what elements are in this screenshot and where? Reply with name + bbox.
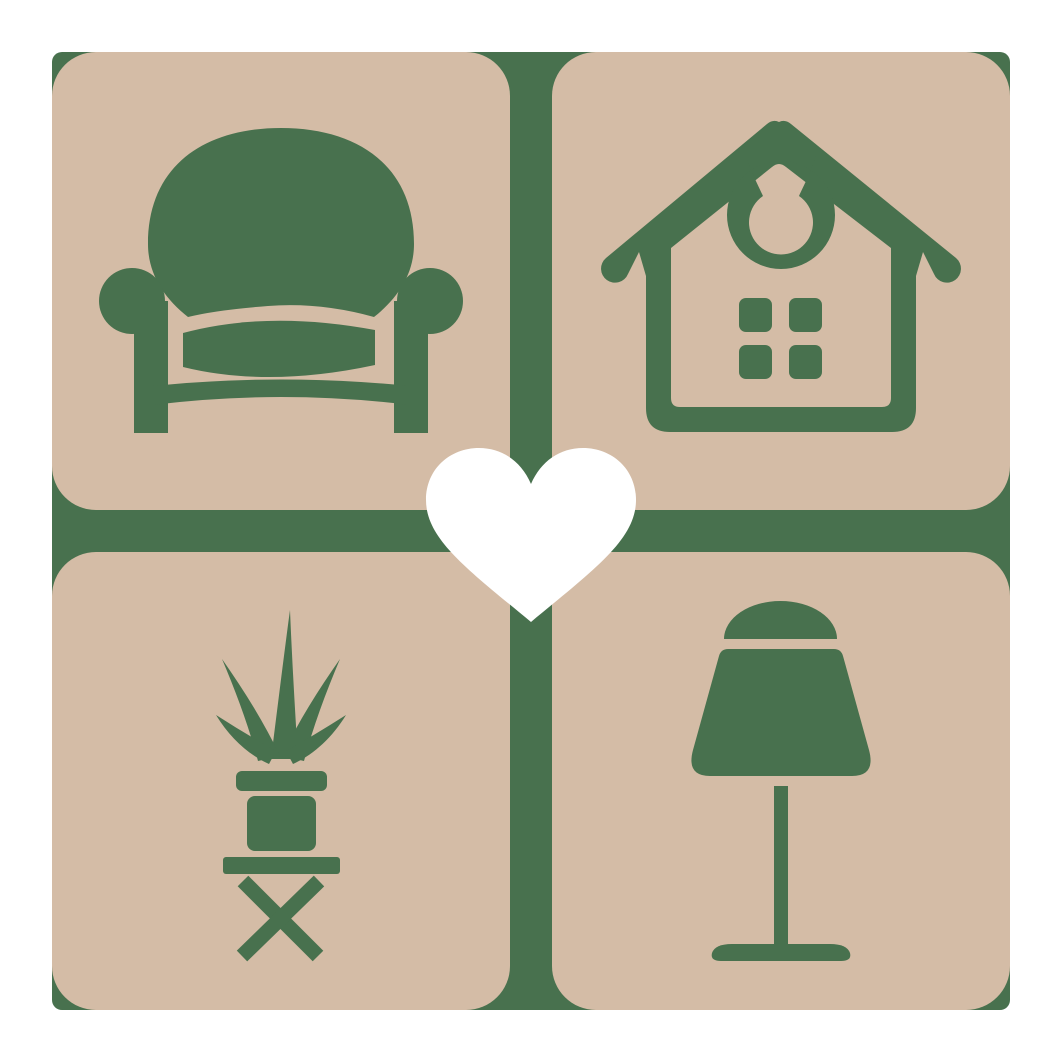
plant-pot-body xyxy=(247,796,316,851)
armchair-icon xyxy=(52,52,510,510)
armchair-right-leg xyxy=(394,301,428,433)
lamp-cap xyxy=(724,601,837,639)
heart-icon xyxy=(425,447,637,623)
house-window-pane xyxy=(739,298,772,332)
armchair-left-leg xyxy=(134,301,168,433)
house-window-pane xyxy=(789,298,822,332)
plant-pot-rim xyxy=(236,771,327,791)
armchair-seat-cushion xyxy=(183,321,375,377)
lamp-shade xyxy=(691,649,870,776)
house-icon xyxy=(552,52,1010,510)
house-window-pane xyxy=(739,345,772,379)
logo-backdrop xyxy=(52,52,1010,1010)
stool-top xyxy=(223,857,340,874)
lamp-stem xyxy=(774,786,788,952)
heart-svg xyxy=(425,447,637,623)
house-outline xyxy=(601,121,961,432)
logo-canvas: { "colors": { "canvas": "#ffffff", "tile… xyxy=(0,0,1063,1063)
heart-shape xyxy=(426,448,636,622)
armchair-backrest xyxy=(148,128,414,317)
house-window-pane xyxy=(789,345,822,379)
tile-house xyxy=(552,52,1010,510)
armchair-front-rail xyxy=(152,380,410,406)
tile-armchair xyxy=(52,52,510,510)
lamp-base xyxy=(712,944,851,961)
